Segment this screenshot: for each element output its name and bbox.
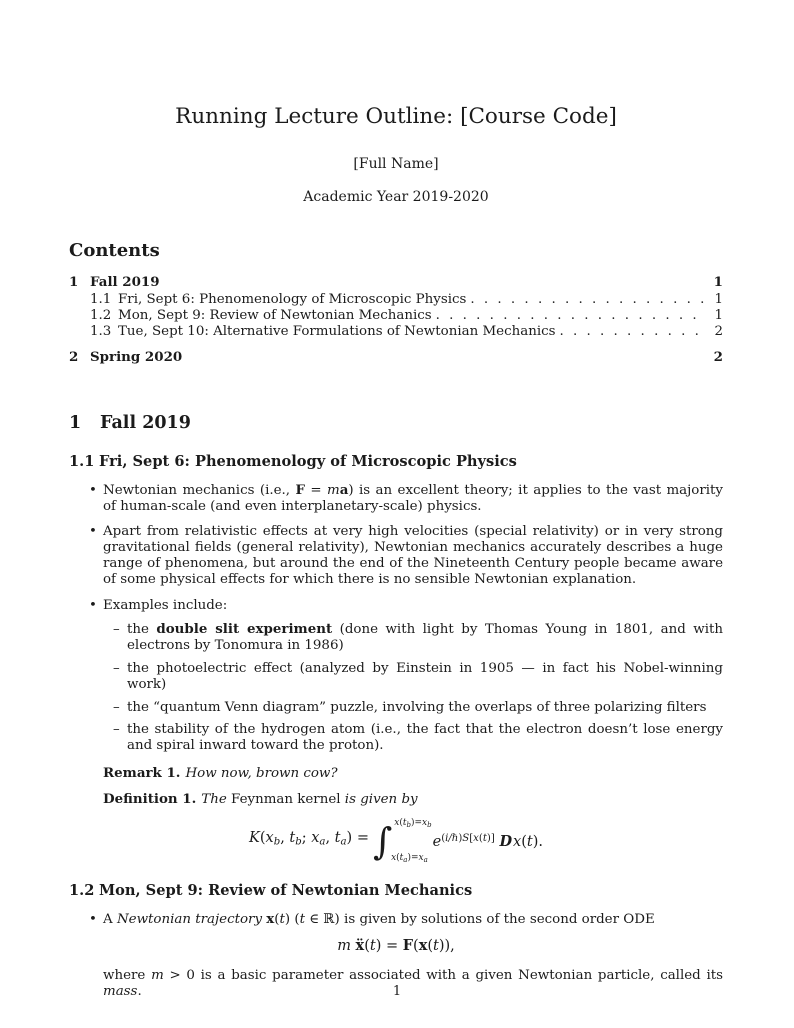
subsection-title: Fri, Sept 6: Phenomenology of Microscopi… [99,453,517,470]
toc-entry-sept-6[interactable]: 1.1 Fri, Sept 6: Phenomenology of Micros… [69,292,723,308]
bullet-relativistic-effects: Apart from relativistic effects at very … [69,524,723,587]
toc-entry-spring-2020[interactable]: 2 Spring 2020 2 [69,350,723,366]
contents-heading: Contents [69,243,723,259]
document-date: Academic Year 2019-2020 [69,190,723,206]
document-author: [Full Name] [69,157,723,173]
toc-entry-label: Fall 2019 [90,275,160,291]
toc-entry-label: Tue, Sept 10: Alternative Formulations o… [118,324,555,340]
toc-entry-page: 1 [711,308,723,324]
newton-second-law-equation: m ẍ(t) = F(x(t)), [69,938,723,955]
toc-entry-number: 1.3 [90,324,118,340]
section-title: Fall 2019 [100,413,191,433]
toc-entry-sept-9[interactable]: 1.2 Mon, Sept 9: Review of Newtonian Mec… [69,308,723,324]
subsection-number: 1.1 [69,453,99,470]
toc-entry-number: 1.2 [90,308,118,324]
subsection-number: 1.2 [69,882,99,899]
integral-limits: x(tb)=xb x(ta)=xa [392,818,431,865]
integral-upper-limit: x(tb)=xb [392,818,431,830]
toc-entry-page: 1 [711,292,723,308]
toc-entry-page: 2 [711,350,723,366]
section-heading-fall-2019: 1 Fall 2019 [69,413,723,433]
toc-entry-label: Mon, Sept 9: Review of Newtonian Mechani… [118,308,432,324]
toc-entry-sept-10[interactable]: 1.3 Tue, Sept 10: Alternative Formulatio… [69,324,723,340]
toc-entry-number: 2 [69,350,90,366]
toc-leader-dots [559,324,707,340]
toc-entry-page: 1 [711,275,723,291]
equation-lhs: K(xb, tb; xa, ta) = [249,831,369,850]
remark-text: How now, brown cow? [185,766,337,781]
sub-bullet-hydrogen-atom: the stability of the hydrogen atom (i.e.… [69,722,723,754]
subsection-title: Mon, Sept 9: Review of Newtonian Mechani… [99,882,472,899]
subsection-heading-sept-9: 1.2 Mon, Sept 9: Review of Newtonian Mec… [69,882,723,899]
sub-bullet-venn-diagram: the “quantum Venn diagram” puzzle, invol… [69,700,723,716]
definition-lead: The Feynman kernel is given by [201,792,417,807]
document-page: Running Lecture Outline: [Course Code] [… [0,0,794,1028]
toc-entry-fall-2019[interactable]: 1 Fall 2019 1 [69,275,723,291]
bullet-newtonian-mechanics: Newtonian mechanics (i.e., F = ma) is an… [69,483,723,515]
toc-entry-page: 2 [711,324,723,340]
integral: ∫ x(tb)=xb x(ta)=xa [373,818,432,865]
table-of-contents: 1 Fall 2019 1 1.1 Fri, Sept 6: Phenomeno… [69,275,723,365]
equation-integrand: e(i/ℏ)S[x(t)] Dx(t). [433,831,543,851]
bullet-examples-include: Examples include: [69,598,723,614]
toc-leader-dots [470,292,707,308]
sub-bullet-double-slit: the double slit experiment (done with li… [69,622,723,654]
toc-entry-number: 1.1 [90,292,118,308]
remark-label: Remark 1. [103,765,180,781]
section-number: 1 [69,413,100,433]
sub-bullet-photoelectric: the photoelectric effect (analyzed by Ei… [69,661,723,693]
toc-entry-label: Spring 2020 [90,350,182,366]
document-title: Running Lecture Outline: [Course Code] [69,104,723,130]
toc-entry-label: Fri, Sept 6: Phenomenology of Microscopi… [118,292,466,308]
toc-leader-dots [436,308,707,324]
definition-label: Definition 1. [103,791,196,807]
page-number: 1 [0,984,794,1000]
subsection-heading-sept-6: 1.1 Fri, Sept 6: Phenomenology of Micros… [69,453,723,470]
integral-lower-limit: x(ta)=xa [387,853,431,865]
remark-1: Remark 1.How now, brown cow? [69,766,723,782]
bullet-newtonian-trajectory: A Newtonian trajectory x(t) (t ∈ ℝ) is g… [69,912,723,928]
feynman-kernel-equation: K(xb, tb; xa, ta) = ∫ x(tb)=xb x(ta)=xa … [69,818,723,865]
toc-entry-number: 1 [69,275,90,291]
definition-1: Definition 1.The Feynman kernel is given… [69,792,723,808]
